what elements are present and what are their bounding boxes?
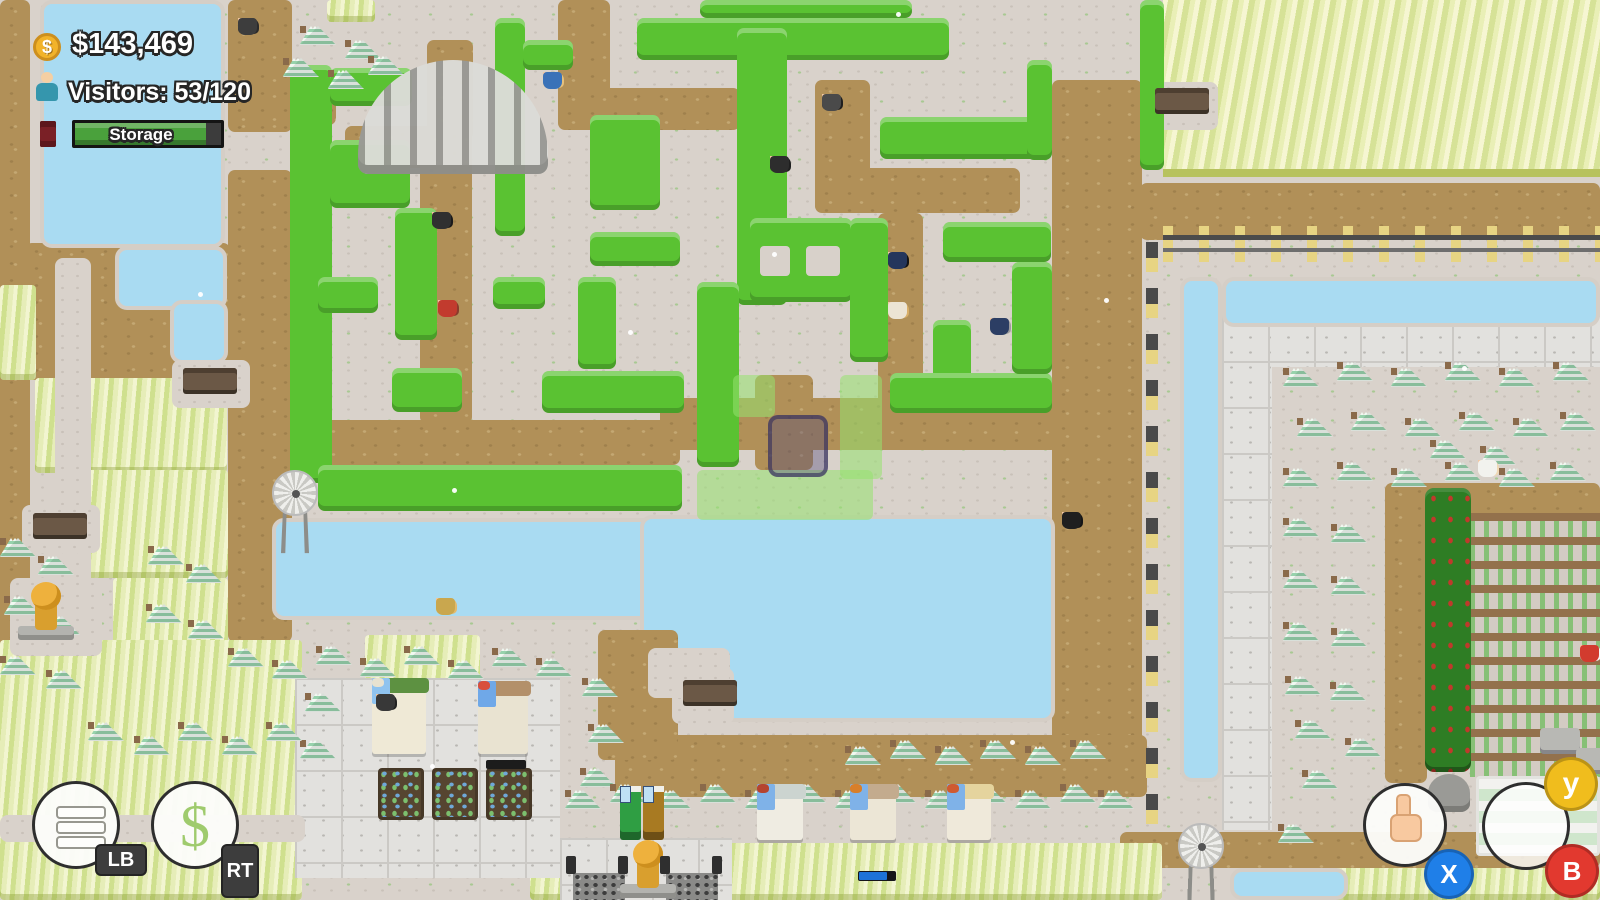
pine-trunk — [146, 604, 152, 611]
visitor-person[interactable] — [543, 72, 567, 110]
water-region — [272, 518, 692, 620]
pine-tree[interactable] — [1337, 362, 1373, 412]
shop-sign — [947, 784, 959, 793]
pine-trunk — [492, 648, 498, 655]
menu-icon-bar — [56, 821, 106, 834]
visitor-person[interactable] — [1580, 645, 1600, 683]
pine-tree[interactable] — [305, 693, 341, 743]
pine-trunk — [1391, 468, 1397, 475]
pine-trunk — [46, 670, 52, 677]
pine-trunk — [38, 556, 44, 563]
pine-tree[interactable] — [1285, 676, 1321, 726]
shop-stall[interactable] — [478, 681, 528, 754]
turnstile-post[interactable] — [618, 856, 628, 874]
pine-tree[interactable] — [46, 670, 82, 720]
snow-particle — [1462, 366, 1467, 371]
pine-trunk — [1480, 446, 1486, 453]
finances-button[interactable]: $ RT — [151, 781, 239, 869]
snow-particle — [452, 488, 457, 493]
hud-panel: $ $143,469 Visitors: 53/120 Storage — [0, 0, 320, 160]
pine-trunk — [316, 646, 322, 653]
pine-tree[interactable] — [88, 722, 124, 772]
pine-trunk — [1459, 412, 1465, 419]
snow-particle — [1010, 740, 1015, 745]
pine-trunk — [1513, 418, 1519, 425]
snow-particle — [198, 292, 203, 297]
pine-trunk — [610, 784, 616, 791]
build-progress-fill — [859, 872, 887, 880]
pine-trunk — [565, 790, 571, 797]
pine-tree[interactable] — [700, 784, 736, 834]
pine-trunk — [266, 722, 272, 729]
visitor-person[interactable] — [822, 94, 846, 132]
pine-trunk — [148, 546, 154, 553]
person-body — [1062, 512, 1081, 529]
person-body — [990, 318, 1009, 335]
dirt-path — [318, 420, 680, 465]
pine-tree[interactable] — [536, 658, 572, 708]
water-region — [1222, 277, 1600, 327]
pine-tree[interactable] — [1295, 720, 1331, 770]
pine-trunk — [1351, 412, 1357, 419]
pine-trunk — [1025, 746, 1031, 753]
hedge-wall[interactable] — [1027, 60, 1052, 160]
snow-particle — [628, 330, 633, 335]
pine-trunk — [368, 56, 374, 63]
visitor-person[interactable] — [770, 156, 794, 194]
person-body — [438, 300, 457, 317]
person-body — [376, 694, 395, 711]
hedge-wall[interactable] — [578, 277, 616, 369]
visitor-person[interactable] — [990, 318, 1014, 356]
pine-trunk — [1278, 824, 1284, 831]
pine-trunk — [1295, 720, 1301, 727]
pine-trunk — [1285, 676, 1291, 683]
pine-trunk — [0, 538, 6, 545]
pine-trunk — [1337, 362, 1343, 369]
menu-icon-bar — [56, 806, 106, 819]
hedge-wall[interactable] — [637, 18, 949, 60]
hedge-wall[interactable] — [1140, 0, 1164, 170]
plot-sign — [486, 760, 526, 769]
visitor-person[interactable] — [1478, 460, 1502, 498]
vending-screen — [643, 786, 654, 803]
person-body — [432, 212, 451, 229]
dirt-path — [815, 168, 1020, 213]
windmill-legs — [1187, 865, 1215, 900]
pine-trunk — [228, 648, 234, 655]
person-body — [888, 302, 907, 319]
pine-trunk — [1405, 418, 1411, 425]
pine-trunk — [222, 736, 228, 743]
shop-stall[interactable] — [757, 784, 803, 840]
vending-machine[interactable] — [643, 786, 664, 840]
pine-tree[interactable] — [1283, 368, 1319, 418]
windmill-legs — [281, 512, 309, 553]
pine-tree[interactable] — [228, 648, 264, 698]
pine-trunk — [1550, 462, 1556, 469]
y-button-badge: y — [1544, 757, 1598, 811]
pine-trunk — [1098, 790, 1104, 797]
visitor-icon-head — [41, 72, 53, 83]
pine-trunk — [582, 678, 588, 685]
pine-tree[interactable] — [300, 740, 336, 790]
pine-trunk — [186, 564, 192, 571]
pine-trunk — [1560, 412, 1566, 419]
storage-crate-icon — [40, 121, 56, 147]
hedge-wall[interactable] — [318, 465, 682, 511]
pine-tree[interactable] — [222, 736, 258, 786]
money-readout: $143,469 — [72, 28, 193, 61]
pine-tree[interactable] — [565, 790, 601, 840]
x-button-badge: X — [1424, 849, 1474, 899]
pine-trunk — [925, 790, 931, 797]
pine-tree[interactable] — [588, 724, 624, 774]
pine-trunk — [1391, 368, 1397, 375]
pine-trunk — [305, 693, 311, 700]
pine-tree[interactable] — [1430, 440, 1466, 490]
hedge-gap — [806, 246, 840, 276]
shop-sign — [372, 678, 384, 687]
pine-tree[interactable] — [1513, 418, 1549, 468]
hedge-wall[interactable] — [697, 282, 739, 467]
pine-trunk — [890, 740, 896, 747]
visitor-person[interactable] — [376, 694, 400, 732]
b-button-badge: B — [1545, 844, 1599, 898]
shop-stall[interactable] — [947, 784, 991, 840]
pine-trunk — [1445, 362, 1451, 369]
pine-tree[interactable] — [1499, 368, 1535, 418]
pine-tree[interactable] — [1070, 740, 1106, 790]
pine-tree[interactable] — [148, 546, 184, 596]
pine-tree[interactable] — [1283, 518, 1319, 568]
shop-sign — [478, 681, 490, 690]
select-tool-button[interactable]: X — [1363, 783, 1447, 867]
park-bench[interactable] — [183, 368, 237, 390]
person-body — [1478, 460, 1497, 477]
water-region — [1180, 277, 1222, 782]
stone-path — [1222, 315, 1272, 830]
ghost-hedge-preview — [733, 375, 775, 417]
pine-tree[interactable] — [1297, 418, 1333, 468]
pine-tree[interactable] — [1351, 412, 1387, 462]
rt-trigger-badge: RT — [221, 844, 259, 898]
pine-trunk — [1330, 682, 1336, 689]
pine-tree[interactable] — [188, 620, 224, 670]
visitor-person[interactable] — [888, 302, 912, 340]
pine-trunk — [935, 746, 941, 753]
pine-trunk — [448, 660, 454, 667]
pine-trunk — [1345, 738, 1351, 745]
garden-table[interactable] — [1540, 728, 1580, 750]
statue-head — [633, 840, 663, 868]
crop-plot[interactable] — [378, 768, 424, 820]
hedge-wall[interactable] — [890, 373, 1052, 413]
pine-trunk — [1331, 576, 1337, 583]
pine-tree[interactable] — [980, 740, 1016, 790]
turnstile-post[interactable] — [712, 856, 722, 874]
snow-particle — [430, 764, 435, 769]
fence[interactable] — [1163, 226, 1600, 262]
pine-tree[interactable] — [1025, 746, 1061, 796]
hedge-wall[interactable] — [395, 208, 437, 340]
tall-grass-patch — [0, 285, 36, 380]
pointing-hand-palm — [1390, 814, 1422, 842]
pine-trunk — [1297, 418, 1303, 425]
visitor-person[interactable] — [1062, 512, 1086, 550]
pine-tree[interactable] — [272, 660, 308, 710]
berry-hedge[interactable] — [1425, 488, 1471, 772]
hedge-wall[interactable] — [542, 371, 684, 413]
ghost-hedge-preview — [697, 470, 873, 520]
park-bench[interactable] — [1155, 88, 1209, 110]
pine-tree[interactable] — [186, 564, 222, 614]
pine-trunk — [360, 658, 366, 665]
hedge-wall[interactable] — [1012, 262, 1052, 374]
pine-tree[interactable] — [1391, 468, 1427, 518]
pine-tree[interactable] — [1553, 362, 1589, 412]
pine-trunk — [134, 736, 140, 743]
shop-sign — [757, 784, 769, 793]
pine-trunk — [1283, 468, 1289, 475]
pine-tree[interactable] — [1337, 462, 1373, 512]
snow-particle — [1104, 298, 1109, 303]
shop-sign — [850, 784, 862, 793]
pine-trunk — [1283, 518, 1289, 525]
dirt-path — [1052, 80, 1142, 742]
pine-tree[interactable] — [0, 656, 36, 706]
pine-tree[interactable] — [1283, 468, 1319, 518]
pine-trunk — [745, 790, 751, 797]
pine-trunk — [1283, 622, 1289, 629]
fence[interactable] — [1146, 242, 1158, 834]
action-button[interactable]: y B — [1482, 782, 1570, 870]
pine-tree[interactable] — [1560, 412, 1596, 462]
shop-stall[interactable] — [850, 784, 896, 840]
hedge-wall[interactable] — [590, 115, 660, 210]
visitor-person[interactable] — [438, 300, 462, 338]
water-region — [170, 300, 228, 364]
ghost-hedge-preview — [840, 375, 882, 479]
person-body — [543, 72, 562, 89]
pine-tree[interactable] — [1060, 784, 1096, 834]
snow-particle — [896, 12, 901, 17]
person-body — [436, 598, 455, 615]
pine-tree[interactable] — [178, 722, 214, 772]
pine-trunk — [178, 722, 184, 729]
pine-tree[interactable] — [1550, 462, 1586, 512]
visitor-person[interactable] — [432, 212, 456, 250]
pine-trunk — [1070, 740, 1076, 747]
pine-trunk — [0, 656, 6, 663]
turnstile-post[interactable] — [660, 856, 670, 874]
pine-trunk — [1015, 790, 1021, 797]
wheat-field — [1163, 0, 1600, 177]
hedge-wall[interactable] — [392, 368, 462, 412]
hedge-wall[interactable] — [523, 40, 573, 70]
selection-cursor — [768, 415, 828, 477]
pine-tree[interactable] — [316, 646, 352, 696]
park-bench[interactable] — [33, 513, 87, 535]
person-body — [770, 156, 789, 173]
pine-trunk — [1283, 368, 1289, 375]
storage-bar-label: Storage — [75, 125, 207, 145]
vending-screen — [620, 786, 631, 803]
crop-plot[interactable] — [486, 768, 532, 820]
park-bench[interactable] — [683, 680, 737, 702]
hedge-wall[interactable] — [318, 277, 378, 313]
pine-tree[interactable] — [1331, 628, 1367, 678]
pine-tree[interactable] — [1302, 770, 1338, 820]
pine-trunk — [1331, 628, 1337, 635]
pine-tree[interactable] — [1278, 824, 1314, 874]
pine-tree[interactable] — [890, 740, 926, 790]
storage-bar: Storage — [72, 120, 224, 148]
pine-trunk — [1430, 440, 1436, 447]
hedge-wall[interactable] — [493, 277, 545, 309]
coin-icon: $ — [33, 33, 61, 61]
visitor-icon-body — [36, 83, 58, 101]
pine-tree[interactable] — [1283, 622, 1319, 672]
person-body — [822, 94, 841, 111]
pine-trunk — [580, 768, 586, 775]
pine-trunk — [404, 646, 410, 653]
hedge-wall[interactable] — [850, 218, 888, 362]
pine-tree[interactable] — [1283, 570, 1319, 620]
pine-trunk — [345, 40, 351, 47]
hedge-gap — [760, 246, 790, 276]
person-body — [888, 252, 907, 269]
pine-tree[interactable] — [0, 538, 36, 588]
pine-trunk — [328, 70, 334, 77]
pine-trunk — [588, 724, 594, 731]
pine-tree[interactable] — [1391, 368, 1427, 418]
pine-trunk — [1337, 462, 1343, 469]
visitor-person[interactable] — [888, 252, 912, 290]
vending-machine[interactable] — [620, 786, 641, 840]
pine-tree[interactable] — [1345, 738, 1381, 788]
pine-trunk — [845, 746, 851, 753]
pine-trunk — [835, 790, 841, 797]
pine-tree[interactable] — [134, 736, 170, 786]
visitor-person[interactable] — [436, 598, 460, 636]
pine-tree[interactable] — [1015, 790, 1051, 840]
windmill-fan[interactable] — [1178, 823, 1224, 869]
pine-tree[interactable] — [582, 678, 618, 728]
pine-trunk — [88, 722, 94, 729]
pine-tree[interactable] — [1330, 682, 1366, 732]
pine-trunk — [536, 658, 542, 665]
cobble-tiles — [573, 873, 625, 900]
pine-trunk — [1553, 362, 1559, 369]
pine-trunk — [1499, 368, 1505, 375]
statue-head — [31, 582, 61, 610]
windmill-fan[interactable] — [272, 470, 318, 516]
pine-tree[interactable] — [1331, 576, 1367, 626]
visitors-readout: Visitors: 53/120 — [68, 78, 251, 107]
person-body — [1580, 645, 1599, 662]
build-progress-bar — [858, 871, 896, 881]
dirt-path — [1385, 483, 1427, 783]
game-viewport[interactable]: $ $143,469 Visitors: 53/120 Storage LB $… — [0, 0, 1600, 900]
gold-statue[interactable] — [18, 582, 76, 640]
pine-trunk — [1302, 770, 1308, 777]
pine-trunk — [1331, 524, 1337, 531]
visitor-icon — [36, 72, 58, 102]
pine-tree[interactable] — [1331, 524, 1367, 574]
crop-plot[interactable] — [432, 768, 478, 820]
lb-shoulder-badge: LB — [95, 844, 147, 876]
snow-particle — [772, 252, 777, 257]
pine-trunk — [980, 740, 986, 747]
pine-trunk — [4, 596, 10, 603]
pine-tree[interactable] — [146, 604, 182, 654]
menu-button[interactable]: LB — [32, 781, 120, 869]
hedge-wall[interactable] — [943, 222, 1051, 262]
pine-trunk — [700, 784, 706, 791]
hedge-wall[interactable] — [590, 232, 680, 266]
pine-tree[interactable] — [1098, 790, 1134, 840]
pine-trunk — [1283, 570, 1289, 577]
hedge-wall[interactable] — [880, 117, 1042, 159]
pine-tree[interactable] — [328, 70, 364, 120]
hedge-wall[interactable] — [700, 0, 912, 18]
turnstile-post[interactable] — [566, 856, 576, 874]
tall-grass-patch — [327, 0, 375, 22]
pine-tree[interactable] — [266, 722, 302, 772]
pine-trunk — [272, 660, 278, 667]
pine-trunk — [188, 620, 194, 627]
